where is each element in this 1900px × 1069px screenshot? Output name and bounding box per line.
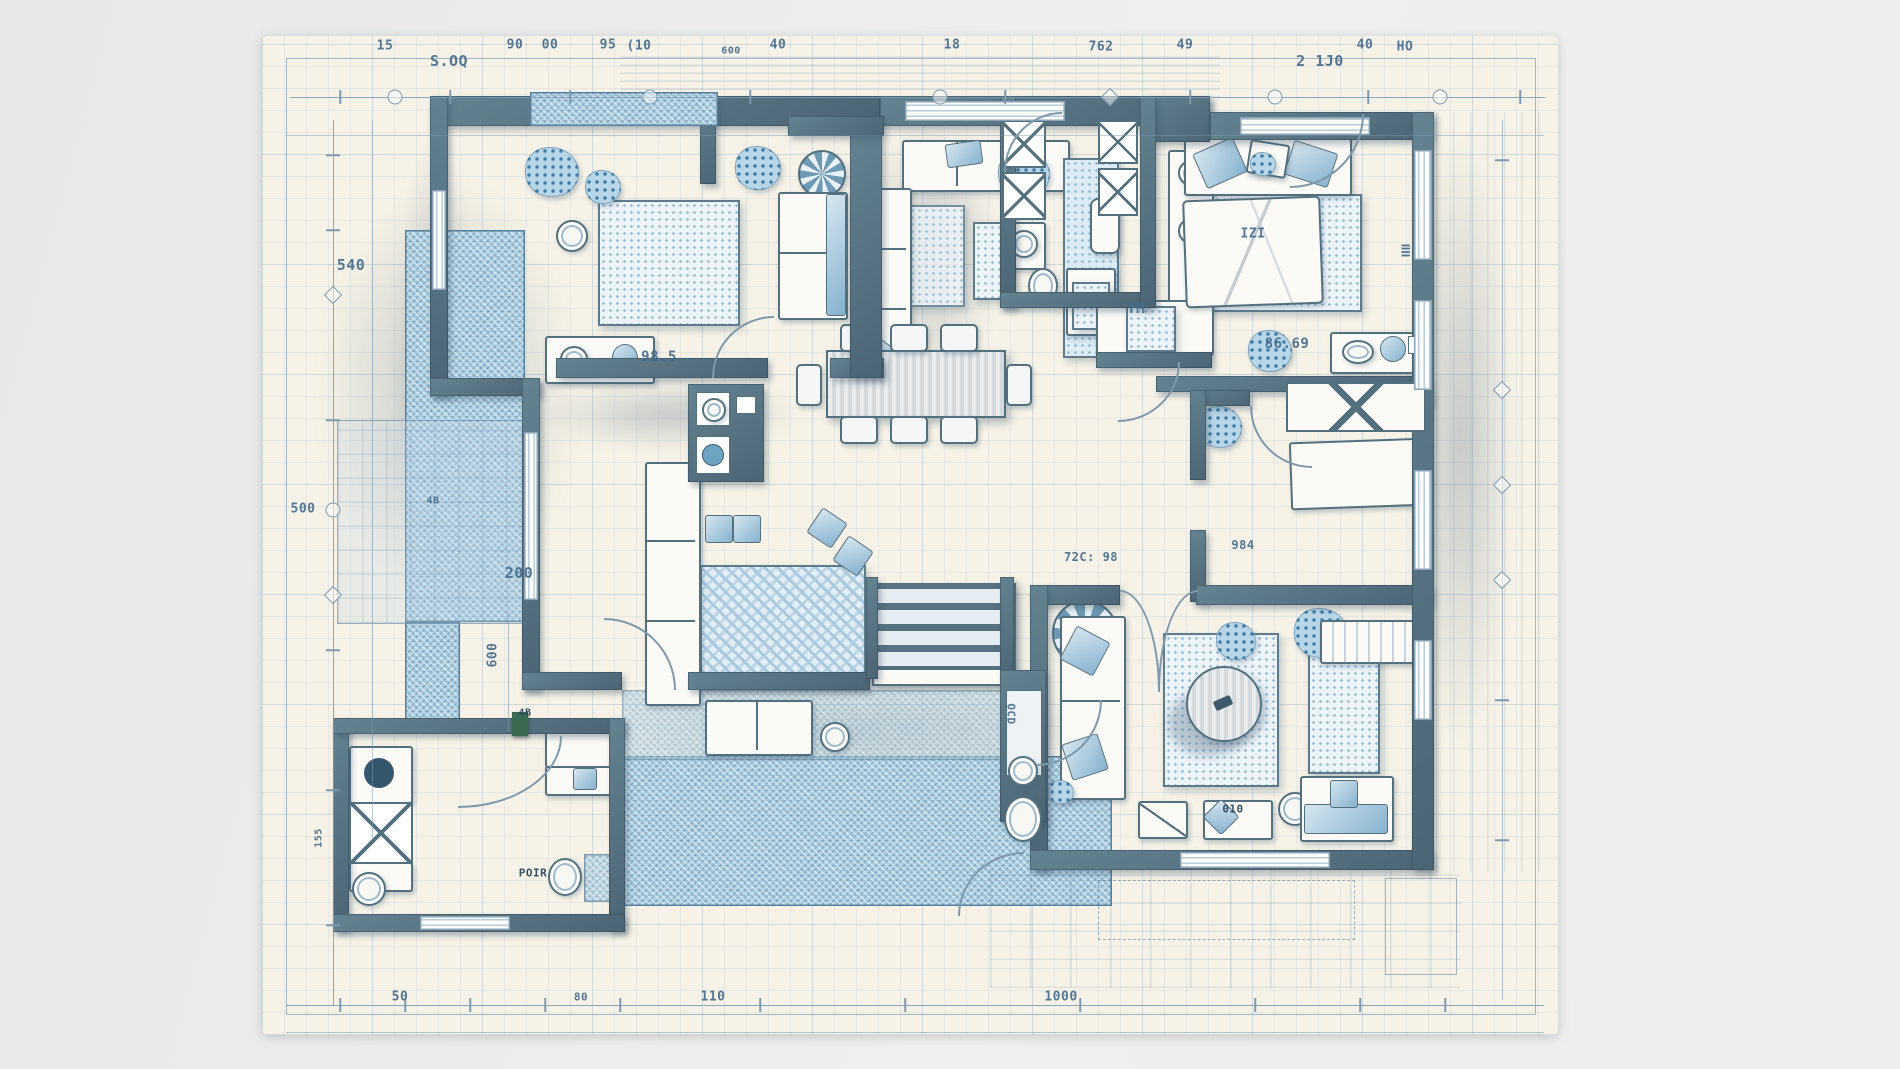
sofa-cushion-line bbox=[647, 540, 695, 542]
ottoman bbox=[733, 515, 761, 543]
bath-fixture bbox=[1002, 172, 1046, 220]
dining-chair bbox=[890, 416, 928, 444]
toilet bbox=[1004, 796, 1042, 842]
dim-label: 49 bbox=[1177, 38, 1194, 53]
window bbox=[1414, 300, 1432, 390]
fixture-label: OCD bbox=[1005, 703, 1018, 724]
wall bbox=[609, 718, 625, 930]
ottoman bbox=[705, 515, 733, 543]
dim-label: 110 bbox=[701, 990, 726, 1005]
sofa-throw-pillow bbox=[945, 140, 984, 169]
dim-label: 600 bbox=[486, 643, 501, 668]
plant bbox=[1048, 780, 1074, 804]
dim-label: 2 1J0 bbox=[1296, 52, 1344, 70]
dim-label: 18 bbox=[944, 38, 961, 53]
daybed-blanket bbox=[826, 194, 846, 316]
basin bbox=[352, 872, 386, 906]
wall bbox=[850, 134, 882, 378]
right-grid-lines bbox=[1436, 112, 1546, 872]
dim-label: 40 bbox=[770, 38, 787, 53]
bath-fixture bbox=[1098, 168, 1138, 216]
dim-label: 500 bbox=[291, 502, 316, 517]
dim-label: HO bbox=[1397, 40, 1414, 55]
bath-mat bbox=[573, 768, 597, 790]
loveseat bbox=[705, 700, 813, 756]
dining-chair bbox=[940, 324, 978, 352]
window bbox=[1414, 150, 1432, 260]
plant bbox=[585, 170, 621, 204]
sofa-cushion-line bbox=[647, 620, 695, 622]
side-lamp bbox=[820, 722, 850, 752]
toilet bbox=[548, 858, 582, 896]
dim-label: 4B bbox=[426, 496, 439, 507]
loveseat-back-pillow bbox=[1330, 780, 1358, 808]
wall bbox=[333, 718, 349, 930]
room-label: YM bbox=[1127, 301, 1145, 317]
bedroom1-rug bbox=[598, 200, 740, 326]
ghost-planter-outline bbox=[1385, 878, 1457, 975]
wall bbox=[866, 577, 878, 679]
wall bbox=[1196, 585, 1432, 605]
dining-chair bbox=[940, 416, 978, 444]
wall bbox=[1000, 292, 1148, 308]
window bbox=[420, 916, 510, 930]
dim-label: 1000 bbox=[1044, 990, 1077, 1005]
familyroom-rug bbox=[700, 565, 866, 687]
wall bbox=[1140, 96, 1156, 308]
dining-chair bbox=[890, 324, 928, 352]
dim-label: 80 bbox=[574, 991, 588, 1004]
dim-label: 50 bbox=[392, 990, 409, 1005]
dim-label: 155 bbox=[314, 828, 325, 848]
niche-speaker bbox=[702, 444, 724, 466]
bed2-duvet bbox=[1182, 196, 1324, 309]
dim-label: 762 bbox=[1089, 40, 1114, 55]
plant bbox=[1250, 152, 1276, 176]
patio-pavers bbox=[337, 420, 531, 624]
room-label: 86.69 bbox=[1265, 336, 1310, 352]
washer-drum bbox=[364, 758, 394, 788]
room-label: 984 bbox=[1231, 538, 1254, 552]
window bbox=[1414, 640, 1432, 720]
loveseat-cushions bbox=[1304, 804, 1388, 834]
patio-hatch-tail bbox=[405, 622, 460, 722]
blueprint-stage: 15 S.OQ 90 00 95 (10 600 40 18 762 49 2 … bbox=[0, 0, 1900, 1069]
ghost-deck-outline bbox=[1098, 880, 1355, 940]
dim-label: 200 bbox=[505, 564, 534, 582]
dining-chair bbox=[796, 364, 822, 406]
niche-dial bbox=[702, 398, 726, 422]
dining-chair bbox=[840, 416, 878, 444]
wall-mark: ≣ bbox=[1401, 241, 1411, 260]
dining-chair bbox=[1006, 364, 1032, 406]
fixture-label: 010 bbox=[1222, 803, 1243, 816]
window-seat bbox=[1320, 620, 1424, 664]
room-label: 72C: 98 bbox=[1064, 550, 1118, 564]
stool bbox=[556, 220, 588, 252]
dim-label: 540 bbox=[337, 256, 366, 274]
wall-niche-small bbox=[736, 396, 756, 414]
dim-label: 90 bbox=[507, 38, 524, 53]
loveseat-cushion-line bbox=[756, 702, 758, 750]
wall bbox=[1190, 390, 1206, 480]
bath-cabinet bbox=[349, 802, 413, 864]
dim-label: 15 bbox=[377, 39, 394, 54]
room-label: IZI bbox=[1241, 227, 1266, 242]
room-label: 98.5 bbox=[641, 349, 677, 365]
dim-label: 00 bbox=[542, 38, 559, 53]
side-table bbox=[1138, 801, 1188, 839]
daybed-divider bbox=[780, 252, 826, 254]
wall bbox=[1000, 577, 1014, 679]
wall bbox=[333, 718, 625, 734]
plant bbox=[1216, 622, 1256, 660]
window bbox=[1180, 852, 1330, 868]
bath-fixture bbox=[1098, 120, 1138, 164]
wall bbox=[688, 672, 870, 690]
hall-knob bbox=[1008, 756, 1038, 786]
wall bbox=[788, 116, 884, 136]
plant bbox=[735, 146, 781, 190]
dresser-sink bbox=[1342, 340, 1374, 364]
window bbox=[432, 190, 446, 290]
room-label: POIR bbox=[519, 867, 548, 880]
dim-label: 40 bbox=[1357, 38, 1374, 53]
stair-landing bbox=[872, 668, 1008, 686]
window bbox=[1414, 470, 1432, 570]
dim-label: (10 bbox=[627, 39, 652, 54]
dim-label: 4B bbox=[518, 708, 531, 719]
ceiling-fan bbox=[798, 150, 846, 198]
dim-label: 600 bbox=[721, 46, 741, 57]
dim-label: 95 bbox=[600, 38, 617, 53]
dim-label: S.OQ bbox=[430, 52, 468, 70]
plant bbox=[525, 147, 579, 197]
dresser-bowl bbox=[1380, 336, 1406, 362]
